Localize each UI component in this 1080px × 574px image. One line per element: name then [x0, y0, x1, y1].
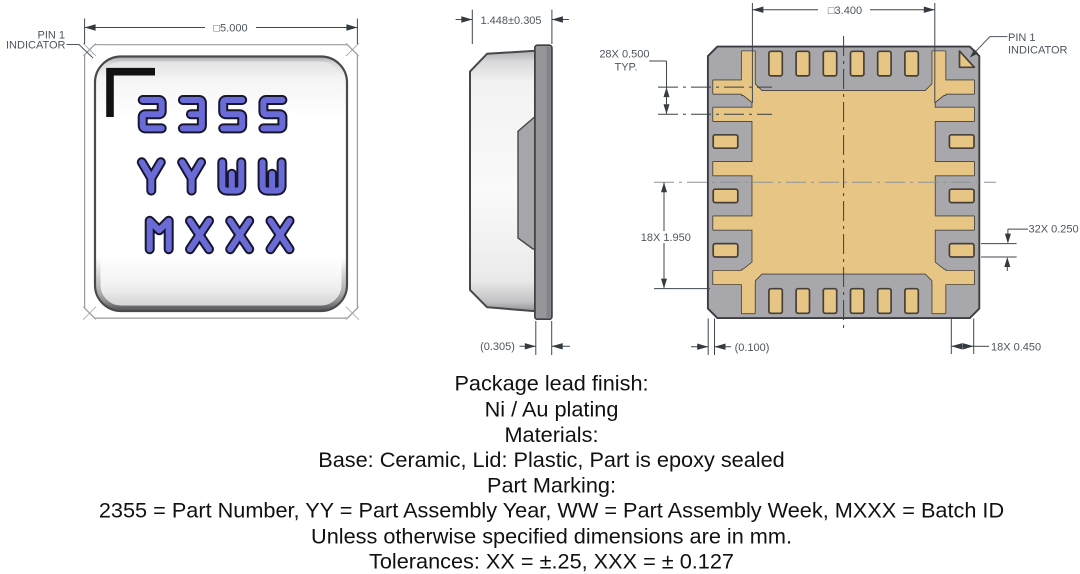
svg-text:Package lead finish:: Package lead finish: — [454, 371, 648, 396]
svg-text:Ni / Au plating: Ni / Au plating — [485, 397, 619, 422]
svg-text:□3.400: □3.400 — [828, 5, 862, 17]
svg-text:18X 0.450: 18X 0.450 — [991, 341, 1041, 353]
svg-text:PIN 1: PIN 1 — [1008, 32, 1036, 44]
svg-text:28X 0.500: 28X 0.500 — [599, 49, 649, 61]
svg-text:Unless otherwise specified dim: Unless otherwise specified dimensions ar… — [311, 524, 792, 549]
svg-text:1.448±0.305: 1.448±0.305 — [480, 15, 541, 27]
svg-text:Part Marking:: Part Marking: — [487, 473, 616, 498]
svg-text:32X 0.250: 32X 0.250 — [1029, 224, 1079, 236]
svg-text:2355 = Part Number, YY = Part: 2355 = Part Number, YY = Part Assembly Y… — [99, 498, 1004, 523]
svg-text:□5.000: □5.000 — [213, 23, 247, 35]
svg-text:TYP.: TYP. — [614, 62, 637, 74]
svg-text:Tolerances: XX = ±.25, XXX = ±: Tolerances: XX = ±.25, XXX = ± 0.127 — [369, 549, 734, 574]
svg-text:Base: Ceramic, Lid: Plastic, P: Base: Ceramic, Lid: Plastic, Part is epo… — [318, 447, 784, 472]
svg-text:(0.100): (0.100) — [735, 342, 770, 354]
svg-text:INDICATOR: INDICATOR — [6, 40, 66, 52]
svg-text:(0.305): (0.305) — [480, 341, 515, 353]
svg-text:18X 1.950: 18X 1.950 — [641, 232, 691, 244]
svg-text:INDICATOR: INDICATOR — [1008, 45, 1068, 57]
svg-text:Materials:: Materials: — [504, 422, 598, 447]
